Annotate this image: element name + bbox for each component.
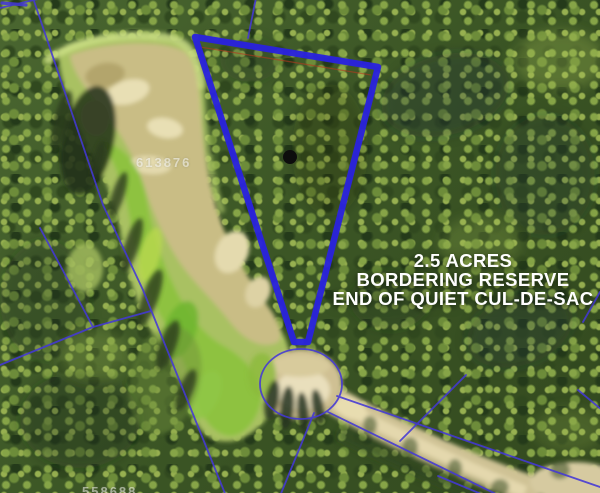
parcel-line-spur (400, 375, 466, 441)
listing-headline: 2.5 ACRES BORDERING RESERVE END OF QUIET… (320, 251, 600, 308)
headline-line-2: BORDERING RESERVE (320, 270, 600, 289)
parcel-line-right-lower (578, 390, 600, 410)
location-marker-dot (283, 150, 297, 164)
headline-line-3: END OF QUIET CUL-DE-SAC (320, 289, 600, 308)
parcel-number-label: 613876 (136, 155, 191, 170)
parcel-number-label-bottom: 558688 (82, 484, 137, 493)
parcel-line-topleft-short (2, 3, 26, 5)
map-overlay-graphics (0, 0, 600, 493)
aerial-map: 613876 558688 2.5 ACRES BORDERING RESERV… (0, 0, 600, 493)
headline-line-1: 2.5 ACRES (320, 251, 600, 270)
parcel-line-topcenter (248, 0, 256, 38)
